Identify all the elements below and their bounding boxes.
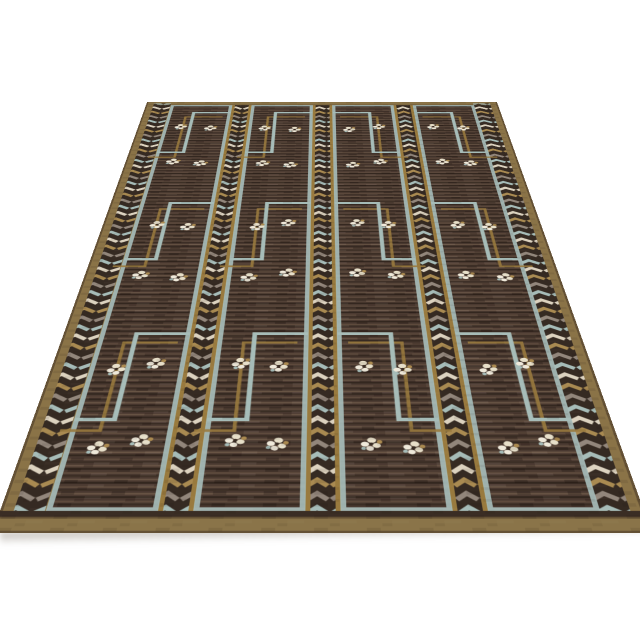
rug-artwork bbox=[0, 102, 640, 533]
rug bbox=[0, 102, 640, 533]
photo-background bbox=[0, 0, 640, 640]
